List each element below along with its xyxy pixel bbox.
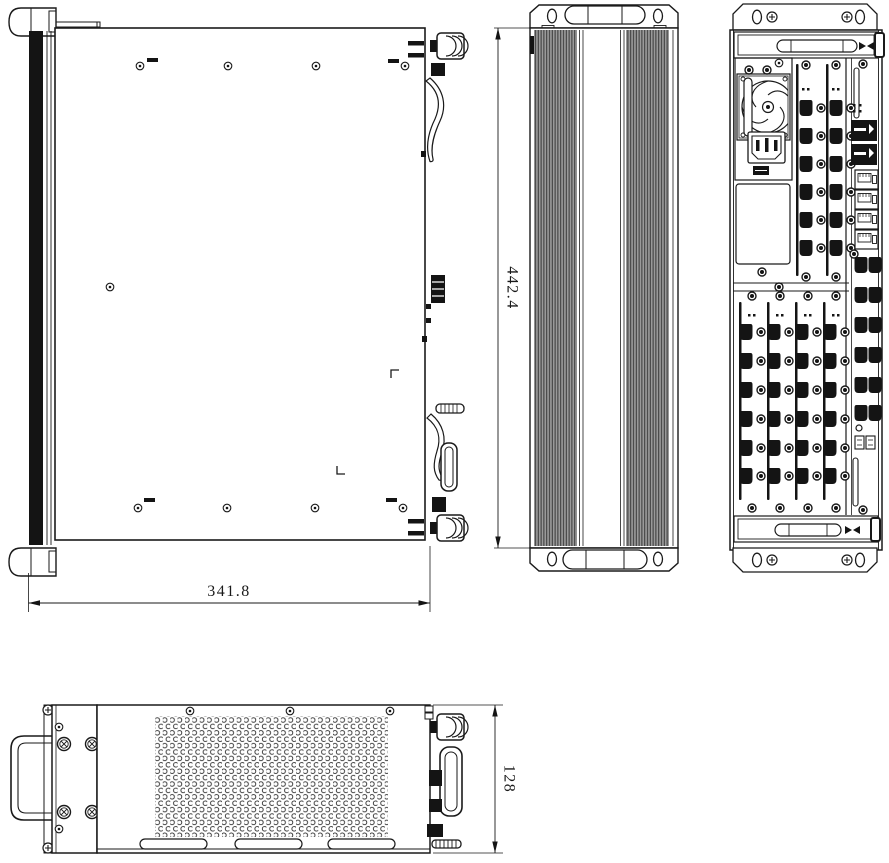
screw-icon bbox=[748, 504, 756, 512]
hdmi-port-icon bbox=[830, 156, 843, 172]
screw-icon bbox=[58, 806, 71, 819]
handle-bar bbox=[777, 40, 857, 52]
screw-icon bbox=[312, 62, 320, 70]
hdmi-port-icon bbox=[768, 440, 781, 456]
screw-icon bbox=[832, 504, 840, 512]
hdmi-port-icon bbox=[740, 353, 753, 369]
engineering-drawing-canvas: 341.8 442.4 128 bbox=[0, 0, 889, 863]
front-panel-edge-strip bbox=[29, 31, 43, 545]
screw-icon bbox=[841, 357, 849, 365]
screw-icon bbox=[813, 472, 821, 480]
screw-icon bbox=[850, 250, 858, 258]
hdmi-port-icon bbox=[796, 382, 809, 398]
screw-icon bbox=[58, 738, 71, 751]
screw-icon bbox=[817, 104, 825, 112]
screw-icon bbox=[813, 328, 821, 336]
screw-icon bbox=[186, 707, 194, 715]
hdmi-port-icon bbox=[869, 257, 882, 273]
latch-lever bbox=[426, 78, 444, 162]
side-view bbox=[530, 5, 678, 571]
hdmi-port-icon bbox=[824, 353, 837, 369]
screw-icon bbox=[757, 328, 765, 336]
heatsink-fins-left bbox=[534, 30, 577, 546]
screw-icon bbox=[817, 188, 825, 196]
screw-icon bbox=[842, 555, 852, 565]
psu-handle bbox=[744, 78, 752, 136]
latch-handle bbox=[440, 747, 462, 816]
screw-icon bbox=[757, 386, 765, 394]
heatsink-fins-right bbox=[626, 30, 669, 546]
oval-hole-icon bbox=[654, 9, 663, 23]
hdmi-port-icon bbox=[855, 317, 868, 333]
hdmi-port-icon bbox=[800, 156, 813, 172]
hdmi-port-icon bbox=[740, 468, 753, 484]
screw-icon bbox=[802, 273, 810, 281]
hdmi-port-icon bbox=[855, 377, 868, 393]
chassis-drawing-svg: 341.8 442.4 128 bbox=[0, 0, 889, 863]
screw-icon bbox=[859, 60, 867, 68]
screw-icon bbox=[817, 244, 825, 252]
hdmi-port-icon bbox=[855, 287, 868, 303]
screw-icon bbox=[745, 66, 753, 74]
screw-icon bbox=[758, 268, 766, 276]
hdmi-port-icon bbox=[800, 128, 813, 144]
hdmi-port-icon bbox=[869, 347, 882, 363]
screw-icon bbox=[55, 825, 63, 833]
screw-icon bbox=[859, 506, 867, 514]
hdmi-port-icon bbox=[869, 377, 882, 393]
screw-icon bbox=[817, 132, 825, 140]
hdmi-port-icon bbox=[796, 440, 809, 456]
screw-icon bbox=[767, 12, 777, 22]
screw-icon bbox=[748, 292, 756, 300]
hdmi-port-icon bbox=[740, 324, 753, 340]
ventilation-mesh bbox=[155, 716, 388, 837]
front-view bbox=[11, 705, 468, 853]
screw-icon bbox=[813, 444, 821, 452]
dimension-label: 442.4 bbox=[504, 266, 521, 310]
screw-icon bbox=[757, 444, 765, 452]
screw-icon bbox=[813, 357, 821, 365]
hdmi-port-icon bbox=[768, 411, 781, 427]
handle-bar bbox=[775, 524, 841, 536]
hdmi-port-icon bbox=[796, 324, 809, 340]
oval-hole-icon bbox=[548, 552, 557, 566]
hdmi-port-icon bbox=[830, 184, 843, 200]
thumbscrew-icon bbox=[430, 33, 468, 59]
hdmi-port-icon bbox=[824, 382, 837, 398]
screw-icon bbox=[286, 707, 294, 715]
oval-hole-icon bbox=[753, 10, 762, 24]
screw-icon bbox=[847, 216, 855, 224]
oval-hole-icon bbox=[856, 553, 865, 567]
screw-icon bbox=[136, 62, 144, 70]
screw-icon bbox=[775, 59, 783, 67]
screw-icon bbox=[55, 723, 63, 731]
hdmi-port-icon bbox=[869, 287, 882, 303]
screw-icon bbox=[785, 357, 793, 365]
screw-icon bbox=[785, 328, 793, 336]
screw-icon bbox=[776, 292, 784, 300]
rj45-port-icon bbox=[855, 230, 878, 249]
screw-icon bbox=[763, 66, 771, 74]
carry-handle bbox=[11, 736, 52, 820]
hdmi-port-icon bbox=[869, 317, 882, 333]
hdmi-port-icon bbox=[768, 468, 781, 484]
screw-icon bbox=[224, 62, 232, 70]
hdmi-port-icon bbox=[740, 411, 753, 427]
screw-icon bbox=[386, 707, 394, 715]
hdmi-port-icon bbox=[768, 353, 781, 369]
screw-icon bbox=[847, 188, 855, 196]
hdmi-port-icon bbox=[768, 382, 781, 398]
screw-icon bbox=[223, 504, 231, 512]
screw-icon bbox=[776, 504, 784, 512]
hdmi-port-icon bbox=[800, 184, 813, 200]
dimension-top-width: 341.8 bbox=[29, 546, 431, 612]
rj45-port-icon bbox=[855, 170, 878, 189]
thumbscrew-icon bbox=[430, 714, 468, 740]
screw-icon bbox=[832, 292, 840, 300]
oval-hole-icon bbox=[753, 553, 762, 567]
hdmi-port-icon bbox=[830, 100, 843, 116]
screw-icon bbox=[804, 504, 812, 512]
usb-port-icon bbox=[866, 436, 875, 449]
screw-icon bbox=[775, 283, 783, 291]
rear-view bbox=[730, 4, 884, 572]
hdmi-port-icon bbox=[824, 440, 837, 456]
hdmi-port-icon bbox=[869, 405, 882, 421]
hdmi-port-icon bbox=[855, 257, 868, 273]
screw-icon bbox=[134, 504, 142, 512]
screw-icon bbox=[785, 415, 793, 423]
hdmi-port-icon bbox=[796, 468, 809, 484]
oval-hole-icon bbox=[654, 552, 663, 566]
hdmi-port-icon bbox=[800, 100, 813, 116]
rj45-port-icon bbox=[855, 210, 878, 229]
hdmi-port-icon bbox=[768, 324, 781, 340]
screw-icon bbox=[817, 216, 825, 224]
dimension-side-depth: 442.4 bbox=[494, 28, 531, 548]
dimension-label: 128 bbox=[501, 765, 518, 794]
screw-icon bbox=[841, 472, 849, 480]
screw-icon bbox=[841, 328, 849, 336]
screw-icon bbox=[813, 415, 821, 423]
dimension-label: 341.8 bbox=[207, 583, 251, 600]
hdmi-port-icon bbox=[830, 128, 843, 144]
screw-icon bbox=[106, 283, 114, 291]
latch-handle bbox=[441, 443, 457, 491]
screw-icon bbox=[804, 292, 812, 300]
screw-icon bbox=[841, 415, 849, 423]
hdmi-port-icon bbox=[740, 382, 753, 398]
oval-hole-icon bbox=[856, 10, 865, 24]
screw-icon bbox=[842, 12, 852, 22]
front-right-fittings bbox=[425, 706, 468, 848]
screw-icon bbox=[757, 357, 765, 365]
hdmi-port-icon bbox=[800, 212, 813, 228]
top-view bbox=[9, 8, 468, 576]
oval-hole-icon bbox=[548, 9, 557, 23]
hdmi-port-icon bbox=[796, 411, 809, 427]
screw-icon bbox=[841, 386, 849, 394]
hdmi-port-icon bbox=[855, 347, 868, 363]
hdmi-port-icon bbox=[796, 353, 809, 369]
screw-icon bbox=[817, 160, 825, 168]
screw-icon bbox=[802, 61, 810, 69]
hdmi-port-icon bbox=[800, 240, 813, 256]
thumbscrew-icon bbox=[430, 515, 468, 541]
handle-bar bbox=[563, 550, 647, 569]
screw-icon bbox=[813, 386, 821, 394]
screw-icon bbox=[832, 61, 840, 69]
screw-icon bbox=[832, 273, 840, 281]
screw-icon bbox=[311, 504, 319, 512]
screw-icon bbox=[767, 555, 777, 565]
hdmi-port-icon bbox=[740, 440, 753, 456]
hdmi-port-icon bbox=[830, 240, 843, 256]
hdmi-port-icon bbox=[855, 405, 868, 421]
screw-icon bbox=[401, 62, 409, 70]
rj45-port-icon bbox=[855, 190, 878, 209]
screw-icon bbox=[757, 472, 765, 480]
hdmi-port-icon bbox=[824, 324, 837, 340]
screw-icon bbox=[785, 386, 793, 394]
screw-icon bbox=[785, 444, 793, 452]
screw-icon bbox=[785, 472, 793, 480]
screw-icon bbox=[757, 415, 765, 423]
hdmi-port-icon bbox=[830, 212, 843, 228]
handle-bar bbox=[565, 6, 645, 24]
screw-icon bbox=[841, 444, 849, 452]
hdmi-port-icon bbox=[824, 468, 837, 484]
screw-icon bbox=[399, 504, 407, 512]
hdmi-port-icon bbox=[824, 411, 837, 427]
usb-port-icon bbox=[855, 436, 864, 449]
